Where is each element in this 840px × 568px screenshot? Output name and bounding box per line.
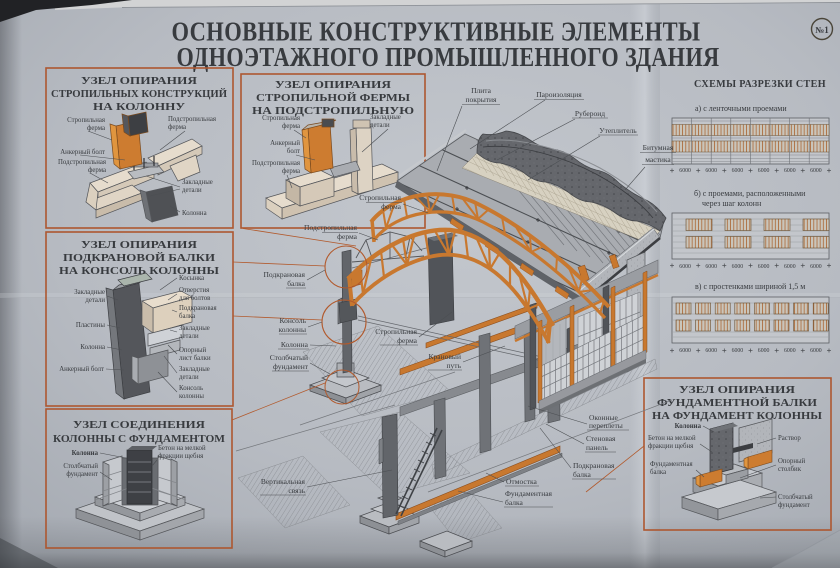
svg-text:Крановый: Крановый bbox=[429, 352, 461, 361]
svg-text:Опорный: Опорный bbox=[179, 347, 207, 354]
svg-text:Колонна: Колонна bbox=[182, 210, 207, 217]
svg-text:Пластины: Пластины bbox=[76, 322, 106, 329]
svg-text:ферма: ферма bbox=[168, 124, 186, 131]
svg-text:Отмостка: Отмостка bbox=[506, 477, 538, 486]
svg-text:Бетон на мелкой: Бетон на мелкой bbox=[158, 445, 206, 452]
svg-text:столбик: столбик bbox=[778, 466, 802, 473]
svg-text:6000: 6000 bbox=[679, 168, 691, 174]
svg-text:Столбчатый: Столбчатый bbox=[270, 353, 308, 362]
svg-text:ферма: ферма bbox=[337, 232, 358, 241]
svg-text:путь: путь bbox=[447, 361, 462, 370]
svg-text:Стропильная: Стропильная bbox=[262, 115, 300, 122]
svg-text:6000: 6000 bbox=[732, 348, 744, 354]
svg-text:УЗЕЛ ОПИРАНИЯ: УЗЕЛ ОПИРАНИЯ bbox=[679, 385, 796, 396]
svg-text:Стропильная: Стропильная bbox=[359, 193, 401, 202]
svg-text:Стропильная: Стропильная bbox=[375, 327, 417, 336]
svg-text:покрытия: покрытия bbox=[466, 95, 497, 104]
svg-text:Отверстия: Отверстия bbox=[179, 287, 209, 294]
svg-text:6000: 6000 bbox=[705, 348, 717, 354]
svg-text:б) с проемами, расположенными: б) с проемами, расположенными bbox=[694, 189, 806, 198]
svg-text:балка: балка bbox=[287, 279, 305, 288]
svg-text:Битумная: Битумная bbox=[643, 143, 674, 152]
svg-text:НА КОЛОННУ: НА КОЛОННУ bbox=[93, 102, 185, 113]
svg-text:ферма: ферма bbox=[87, 125, 105, 132]
svg-text:УЗЕЛ ОПИРАНИЯ: УЗЕЛ ОПИРАНИЯ bbox=[81, 76, 198, 87]
svg-text:детали: детали bbox=[370, 122, 390, 129]
svg-text:ПОДКРАНОВОЙ БАЛКИ: ПОДКРАНОВОЙ БАЛКИ bbox=[63, 252, 215, 264]
svg-text:фундамент: фундамент bbox=[273, 362, 309, 371]
svg-text:Анкерный: Анкерный bbox=[270, 140, 300, 147]
svg-text:Закладные: Закладные bbox=[182, 179, 213, 186]
svg-text:Плита: Плита bbox=[471, 86, 492, 95]
svg-text:6000: 6000 bbox=[679, 348, 691, 354]
svg-text:6000: 6000 bbox=[732, 264, 744, 270]
svg-text:фундамент: фундамент bbox=[66, 471, 98, 478]
svg-text:6000: 6000 bbox=[758, 264, 770, 270]
svg-text:болт: болт bbox=[287, 148, 300, 155]
svg-text:СХЕМЫ РАЗРЕЗКИ СТЕН: СХЕМЫ РАЗРЕЗКИ СТЕН bbox=[694, 78, 826, 90]
svg-text:Пароизоляция: Пароизоляция bbox=[536, 90, 582, 99]
svg-text:Закладные: Закладные bbox=[179, 325, 210, 332]
svg-text:Вертикальная: Вертикальная bbox=[261, 477, 306, 486]
svg-text:балка: балка bbox=[505, 498, 523, 507]
svg-text:лист балки: лист балки bbox=[179, 355, 211, 362]
svg-text:6000: 6000 bbox=[758, 168, 770, 174]
svg-text:Подстропильная: Подстропильная bbox=[58, 159, 106, 166]
svg-text:фундамент: фундамент bbox=[778, 502, 810, 509]
svg-text:№1: №1 bbox=[815, 25, 829, 35]
svg-text:Колонна: Колонна bbox=[72, 450, 99, 457]
svg-text:6000: 6000 bbox=[732, 168, 744, 174]
svg-text:панель: панель bbox=[586, 443, 608, 452]
svg-text:балка: балка bbox=[573, 470, 591, 479]
svg-text:6000: 6000 bbox=[784, 168, 796, 174]
svg-text:6000: 6000 bbox=[810, 264, 822, 270]
svg-text:ферма: ферма bbox=[282, 168, 300, 175]
svg-text:фракции щебня: фракции щебня bbox=[158, 453, 203, 460]
svg-text:Закладные: Закладные bbox=[74, 289, 105, 296]
svg-text:детали: детали bbox=[179, 374, 199, 381]
svg-text:детали: детали bbox=[179, 333, 199, 340]
svg-text:для болтов: для болтов bbox=[179, 295, 210, 302]
svg-text:колонны: колонны bbox=[179, 393, 204, 400]
svg-text:Столбчатый: Столбчатый bbox=[63, 463, 98, 470]
svg-text:6000: 6000 bbox=[679, 264, 691, 270]
svg-text:Стропильная: Стропильная bbox=[67, 117, 105, 124]
svg-text:Закладные: Закладные bbox=[370, 114, 401, 121]
svg-text:Стеновая: Стеновая bbox=[586, 434, 616, 443]
svg-text:ОДНОЭТАЖНОГО ПРОМЫШЛЕННОГО ЗДА: ОДНОЭТАЖНОГО ПРОМЫШЛЕННОГО ЗДАНИЯ bbox=[177, 41, 720, 72]
svg-text:Колонна: Колонна bbox=[80, 344, 105, 351]
svg-text:6000: 6000 bbox=[784, 348, 796, 354]
svg-text:через шаг колонн: через шаг колонн bbox=[702, 199, 762, 208]
svg-text:ферма: ферма bbox=[282, 123, 300, 130]
svg-text:Подстропильная: Подстропильная bbox=[168, 116, 216, 123]
svg-text:6000: 6000 bbox=[705, 168, 717, 174]
svg-text:Закладные: Закладные bbox=[179, 366, 210, 373]
svg-text:мастика: мастика bbox=[645, 155, 671, 164]
svg-text:УЗЕЛ ОПИРАНИЯ: УЗЕЛ ОПИРАНИЯ bbox=[81, 240, 198, 251]
svg-text:СТРОПИЛЬНЫХ КОНСТРУКЦИЙ: СТРОПИЛЬНЫХ КОНСТРУКЦИЙ bbox=[51, 88, 227, 100]
svg-text:КОЛОННЫ С ФУНДАМЕНТОМ: КОЛОННЫ С ФУНДАМЕНТОМ bbox=[53, 433, 226, 445]
svg-text:ФУНДАМЕНТНОЙ БАЛКИ: ФУНДАМЕНТНОЙ БАЛКИ bbox=[657, 397, 817, 409]
svg-text:связь: связь bbox=[288, 486, 305, 495]
svg-text:а) с ленточными проемами: а) с ленточными проемами bbox=[695, 104, 787, 113]
svg-text:Бетон на мелкой: Бетон на мелкой bbox=[648, 435, 696, 442]
svg-text:Подкрановая: Подкрановая bbox=[264, 270, 306, 279]
svg-text:Колонна: Колонна bbox=[675, 423, 702, 430]
svg-text:СТРОПИЛЬНОЙ ФЕРМЫ: СТРОПИЛЬНОЙ ФЕРМЫ bbox=[256, 92, 411, 104]
svg-text:Консоль: Консоль bbox=[279, 316, 306, 325]
svg-text:фракции щебня: фракции щебня bbox=[648, 443, 693, 450]
svg-text:Подкрановая: Подкрановая bbox=[573, 461, 615, 470]
svg-text:Фундаментная: Фундаментная bbox=[650, 461, 693, 468]
svg-text:6000: 6000 bbox=[784, 264, 796, 270]
svg-text:Анкерный болт: Анкерный болт bbox=[60, 149, 105, 156]
svg-text:колонны: колонны bbox=[279, 325, 306, 334]
svg-text:Консоль: Консоль bbox=[179, 385, 203, 392]
svg-text:Раствор: Раствор bbox=[778, 435, 801, 442]
svg-text:балка: балка bbox=[650, 469, 666, 476]
svg-text:6000: 6000 bbox=[810, 348, 822, 354]
svg-text:Подстропильная: Подстропильная bbox=[304, 223, 357, 232]
svg-text:в) с простенками шириной 1,5 м: в) с простенками шириной 1,5 м bbox=[695, 282, 805, 291]
svg-text:Подкрановая: Подкрановая bbox=[179, 305, 217, 312]
svg-text:Фундаментная: Фундаментная bbox=[505, 489, 553, 498]
svg-text:Опорный: Опорный bbox=[778, 458, 806, 465]
svg-text:ферма: ферма bbox=[381, 202, 402, 211]
svg-text:Столбчатый: Столбчатый bbox=[778, 494, 813, 501]
svg-text:6000: 6000 bbox=[705, 264, 717, 270]
svg-text:ферма: ферма bbox=[397, 336, 418, 345]
svg-text:Утеплитель: Утеплитель bbox=[599, 126, 637, 135]
svg-text:Рубероид: Рубероид bbox=[575, 109, 605, 118]
svg-text:переплеты: переплеты bbox=[589, 421, 623, 430]
svg-text:УЗЕЛ ОПИРАНИЯ: УЗЕЛ ОПИРАНИЯ bbox=[275, 80, 392, 91]
svg-text:Колонна: Колонна bbox=[281, 340, 309, 349]
svg-text:детали: детали bbox=[182, 187, 202, 194]
svg-text:УЗЕЛ СОЕДИНЕНИЯ: УЗЕЛ СОЕДИНЕНИЯ bbox=[73, 419, 205, 431]
svg-text:Косынка: Косынка bbox=[179, 275, 204, 282]
svg-text:ферма: ферма bbox=[88, 167, 106, 174]
svg-text:балка: балка bbox=[179, 313, 195, 320]
svg-text:6000: 6000 bbox=[810, 168, 822, 174]
svg-text:детали: детали bbox=[85, 297, 105, 304]
svg-text:Подстропильная: Подстропильная bbox=[252, 160, 300, 167]
svg-text:Анкерный болт: Анкерный болт bbox=[59, 366, 104, 373]
svg-text:НА ФУНДАМЕНТ КОЛОННЫ: НА ФУНДАМЕНТ КОЛОННЫ bbox=[652, 411, 823, 422]
svg-text:6000: 6000 bbox=[758, 348, 770, 354]
